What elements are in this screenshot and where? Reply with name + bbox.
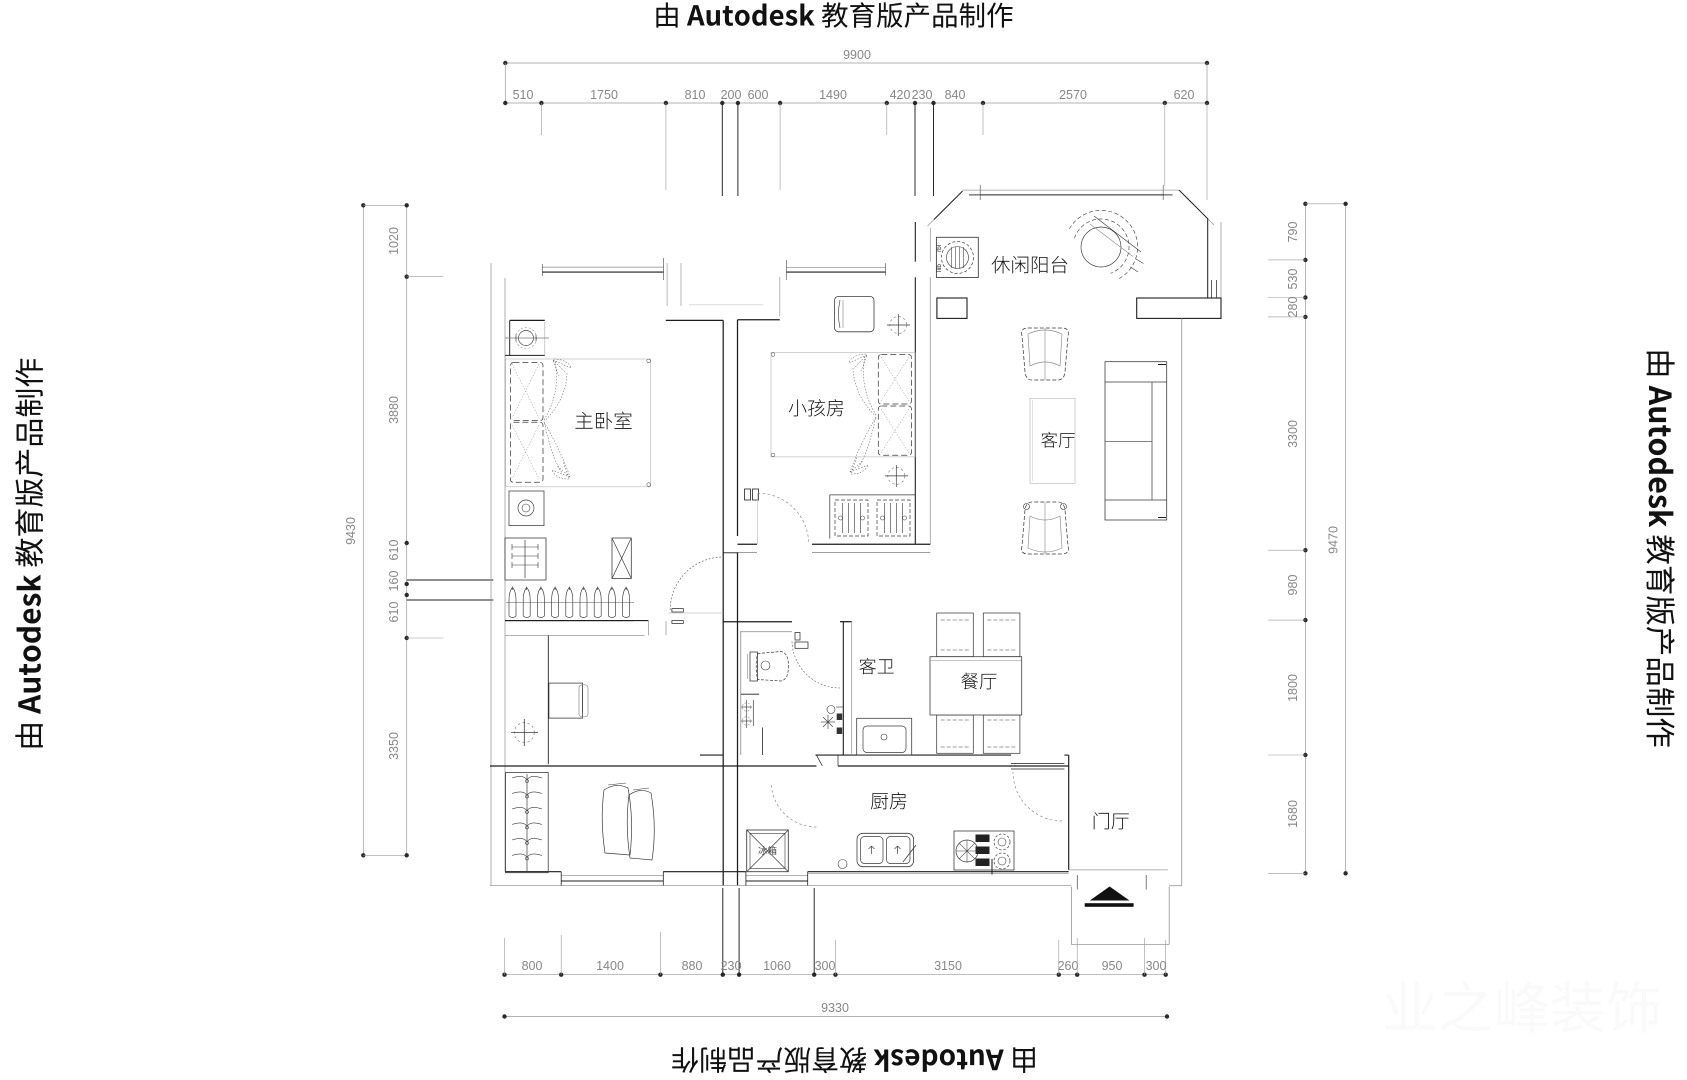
- svg-text:980: 980: [1286, 575, 1300, 596]
- svg-text:llib: llib: [936, 264, 943, 272]
- svg-text:1490: 1490: [819, 88, 847, 102]
- svg-text:800: 800: [522, 959, 543, 973]
- svg-text:260: 260: [1058, 959, 1079, 973]
- svg-text:530: 530: [1286, 269, 1300, 290]
- svg-text:1680: 1680: [1286, 800, 1300, 828]
- svg-text:620: 620: [1174, 88, 1195, 102]
- svg-text:1400: 1400: [596, 959, 624, 973]
- svg-text:300: 300: [1146, 959, 1167, 973]
- svg-text:230: 230: [721, 959, 742, 973]
- svg-text:600: 600: [748, 88, 769, 102]
- svg-text:950: 950: [1102, 959, 1123, 973]
- svg-text:810: 810: [685, 88, 706, 102]
- svg-text:300: 300: [815, 959, 836, 973]
- svg-text:160: 160: [387, 571, 401, 592]
- svg-text:280: 280: [1286, 297, 1300, 318]
- svg-text:1060: 1060: [763, 959, 791, 973]
- svg-text:rbl: rbl: [936, 244, 943, 252]
- svg-text:610: 610: [387, 602, 401, 623]
- svg-text:420: 420: [890, 88, 911, 102]
- svg-text:9430: 9430: [344, 517, 358, 545]
- svg-text:3150: 3150: [934, 959, 962, 973]
- svg-text:1750: 1750: [590, 88, 618, 102]
- svg-text:840: 840: [945, 88, 966, 102]
- svg-text:230: 230: [912, 88, 933, 102]
- svg-text:3350: 3350: [387, 732, 401, 760]
- svg-text:2570: 2570: [1059, 88, 1087, 102]
- svg-text:200: 200: [721, 88, 742, 102]
- svg-text:9330: 9330: [821, 1001, 849, 1015]
- svg-text:790: 790: [1286, 222, 1300, 243]
- svg-text:1800: 1800: [1286, 674, 1300, 702]
- svg-text:610: 610: [387, 540, 401, 561]
- svg-text:3300: 3300: [1286, 420, 1300, 448]
- svg-text:3880: 3880: [387, 396, 401, 424]
- svg-text:880: 880: [682, 959, 703, 973]
- svg-text:9900: 9900: [843, 48, 871, 62]
- svg-text:1020: 1020: [387, 227, 401, 255]
- svg-text:510: 510: [513, 88, 534, 102]
- svg-text:9470: 9470: [1327, 526, 1341, 554]
